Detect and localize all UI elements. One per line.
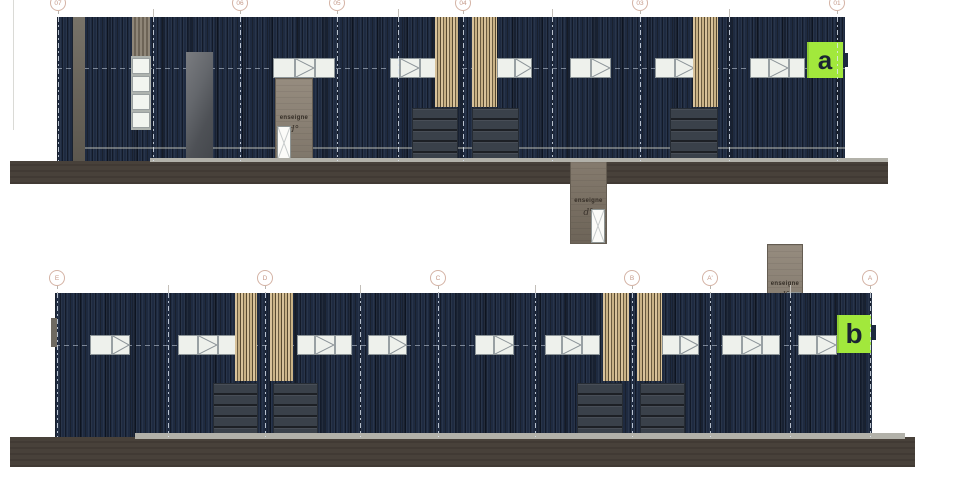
- page-edge-line: [13, 0, 14, 130]
- window-pane: [91, 336, 111, 354]
- grid-leader: [870, 286, 871, 293]
- grid-circle: A': [702, 270, 718, 286]
- grid-tick: [790, 285, 791, 293]
- window-pane: [761, 336, 779, 354]
- stair-cladding-strip: [132, 17, 150, 57]
- casement-pane: [741, 336, 761, 354]
- facade-cladding: [55, 293, 872, 437]
- grid-leader: [463, 11, 464, 17]
- window-pane: [217, 336, 236, 354]
- grid-circle: C: [430, 270, 446, 286]
- grid-line: [535, 293, 536, 437]
- grid-line: [337, 17, 338, 161]
- window-pane: [751, 59, 768, 77]
- grid-line: [153, 17, 154, 161]
- elevation-drawing-canvas: enseigned°enseigned°enseigned°a070605040…: [0, 0, 960, 489]
- wood-slat-screen: [235, 293, 257, 381]
- window-pane: [656, 59, 674, 77]
- window-pane: [663, 336, 679, 354]
- window-pane: [723, 336, 741, 354]
- casement-pane: [388, 336, 406, 354]
- window-pane: [581, 336, 599, 354]
- recessed-panel: [186, 52, 213, 161]
- wood-slat-screen: [270, 293, 293, 381]
- garage-door: [577, 383, 623, 436]
- grid-circle: A: [862, 270, 878, 286]
- wood-slat-screen: [603, 293, 629, 381]
- grid-line: [837, 17, 838, 161]
- facade-tab: [871, 325, 876, 340]
- grid-leader: [640, 11, 641, 17]
- window-pane: [274, 59, 294, 77]
- grid-leader: [710, 286, 711, 293]
- window-band: [545, 335, 600, 355]
- facade-tab: [843, 53, 848, 67]
- window-pane: [476, 336, 493, 354]
- grid-tick: [360, 285, 361, 293]
- window-band: [178, 335, 237, 355]
- window-pane: [369, 336, 388, 354]
- window-pane: [298, 336, 314, 354]
- casement-pane: [197, 336, 217, 354]
- grid-leader: [438, 286, 439, 293]
- elevation-label: b: [837, 315, 871, 353]
- grid-line: [790, 293, 791, 437]
- window-band: [798, 335, 837, 355]
- entrance-panel: enseigned°: [275, 78, 313, 161]
- window-band: [750, 58, 805, 78]
- grid-leader: [265, 286, 266, 293]
- window-pane: [799, 336, 816, 354]
- wood-slat-screen: [637, 293, 662, 381]
- stair-window: [132, 76, 150, 92]
- grid-tick: [552, 9, 553, 17]
- window-pane: [179, 336, 197, 354]
- garage-door: [273, 383, 318, 436]
- window-band: [273, 58, 335, 78]
- grid-line: [240, 17, 241, 161]
- window-band: [90, 335, 130, 355]
- wood-slat-screen: [435, 17, 458, 107]
- casement-pane: [679, 336, 698, 354]
- grid-tick: [729, 9, 730, 17]
- window-pane: [788, 59, 804, 77]
- grid-leader: [837, 11, 838, 17]
- wood-slat-screen: [693, 17, 718, 107]
- casement-pane: [294, 59, 314, 77]
- grid-line: [360, 293, 361, 437]
- grid-circle: 03: [632, 0, 648, 11]
- grid-line: [57, 293, 58, 437]
- garage-door: [670, 108, 718, 161]
- window-pane: [334, 336, 351, 354]
- sign-text: enseigne: [276, 115, 312, 122]
- casement-pane: [514, 59, 531, 77]
- grid-line: [640, 17, 641, 161]
- window-band: [368, 335, 407, 355]
- grid-line: [265, 293, 266, 437]
- grid-circle: 01: [829, 0, 845, 11]
- garage-door: [640, 383, 685, 436]
- grid-leader: [57, 286, 58, 293]
- window-pane: [546, 336, 561, 354]
- grid-leader: [337, 11, 338, 17]
- grid-tick: [535, 285, 536, 293]
- window-band: [497, 58, 532, 78]
- stair-window: [132, 94, 150, 110]
- garage-door: [472, 108, 519, 161]
- grid-circle: 07: [50, 0, 66, 11]
- casement-pane: [768, 59, 788, 77]
- casement-pane: [590, 59, 610, 77]
- window-band: [570, 58, 611, 78]
- grid-leader: [632, 286, 633, 293]
- window-pane: [314, 59, 334, 77]
- grid-line: [398, 17, 399, 161]
- grid-line: [870, 293, 871, 437]
- entrance-panel: enseigned°: [570, 161, 607, 244]
- window-band: [722, 335, 780, 355]
- grid-leader: [58, 11, 59, 17]
- grid-circle: B: [624, 270, 640, 286]
- garage-door: [412, 108, 458, 161]
- stair-window: [132, 58, 150, 74]
- casement-pane: [561, 336, 581, 354]
- grid-line: [710, 293, 711, 437]
- grid-line: [58, 17, 59, 161]
- grid-tick: [153, 9, 154, 17]
- window-band: [655, 58, 695, 78]
- ground-strip: [10, 161, 888, 184]
- grid-leader: [240, 11, 241, 17]
- grid-circle: 05: [329, 0, 345, 11]
- window-pane: [498, 59, 514, 77]
- grid-circle: D: [257, 270, 273, 286]
- ground-strip: [10, 437, 915, 467]
- grid-line: [463, 17, 464, 161]
- casement-pane: [314, 336, 334, 354]
- grid-line: [438, 293, 439, 437]
- grid-line: [552, 17, 553, 161]
- sign-text: enseigne: [571, 198, 606, 205]
- grid-line: [168, 293, 169, 437]
- window-band: [297, 335, 352, 355]
- garage-door: [213, 383, 258, 436]
- wood-slat-screen: [472, 17, 497, 107]
- casement-pane: [111, 336, 129, 354]
- window-band: [662, 335, 699, 355]
- entrance-door: [591, 209, 605, 243]
- window-band: [475, 335, 514, 355]
- grid-tick: [398, 9, 399, 17]
- casement-pane: [674, 59, 694, 77]
- window-pane: [571, 59, 590, 77]
- casement-pane: [493, 336, 513, 354]
- grid-line: [632, 293, 633, 437]
- entrance-door: [277, 126, 291, 160]
- casement-pane: [816, 336, 836, 354]
- grid-circle: E: [49, 270, 65, 286]
- grid-circle: 04: [455, 0, 471, 11]
- rainwater-pipe: [73, 17, 85, 161]
- kerb-strip: [150, 158, 888, 162]
- stair-window-column: [131, 56, 151, 130]
- grid-line: [729, 17, 730, 161]
- grid-circle: 06: [232, 0, 248, 11]
- casement-pane: [399, 59, 419, 77]
- window-pane: [419, 59, 436, 77]
- sign-text: enseigne: [768, 281, 802, 288]
- grid-tick: [168, 285, 169, 293]
- stair-window: [132, 112, 150, 128]
